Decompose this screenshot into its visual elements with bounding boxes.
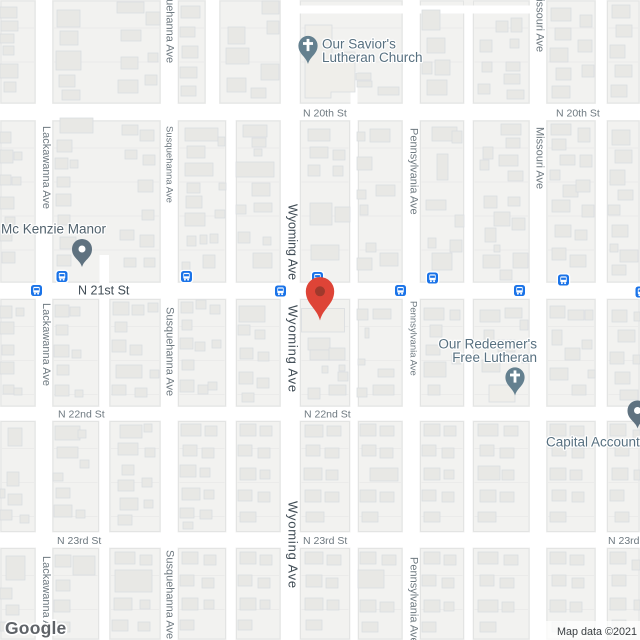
svg-text:Susquehanna Ave: Susquehanna Ave	[164, 0, 176, 63]
svg-text:N 23rd St: N 23rd St	[608, 535, 640, 547]
svg-text:Wyoming Ave: Wyoming Ave	[286, 204, 300, 280]
svg-text:Pennsylvania Ave: Pennsylvania Ave	[408, 557, 420, 640]
svg-text:Map data ©2021: Map data ©2021	[557, 626, 637, 638]
svg-text:Free Lutheran: Free Lutheran	[452, 350, 537, 365]
svg-text:N 22nd St: N 22nd St	[304, 409, 351, 421]
svg-text:Susquehanna Ave: Susquehanna Ave	[164, 126, 175, 203]
svg-text:N 20th St: N 20th St	[303, 108, 347, 120]
svg-text:Google: Google	[5, 618, 67, 638]
svg-text:N 22nd St: N 22nd St	[58, 409, 105, 421]
svg-text:Susquehanna Ave: Susquehanna Ave	[164, 550, 176, 639]
svg-text:Mc Kenzie Manor: Mc Kenzie Manor	[1, 222, 107, 237]
svg-text:N 23rd St: N 23rd St	[57, 535, 101, 547]
svg-text:Susquehanna Ave: Susquehanna Ave	[164, 307, 176, 396]
svg-text:Missouri Ave: Missouri Ave	[534, 0, 546, 52]
svg-text:Capital Accounting: Capital Accounting	[546, 435, 640, 450]
svg-text:Missouri Ave: Missouri Ave	[534, 127, 546, 189]
svg-text:N 21st St: N 21st St	[78, 284, 130, 298]
svg-text:N 23rd St: N 23rd St	[303, 535, 347, 547]
svg-text:Lutheran Church: Lutheran Church	[322, 50, 423, 65]
svg-text:Wyoming Ave: Wyoming Ave	[286, 305, 301, 393]
svg-text:Pennsylvania Ave: Pennsylvania Ave	[408, 301, 419, 376]
svg-text:Pennsylvania Ave: Pennsylvania Ave	[408, 128, 420, 215]
svg-text:Wyoming Ave: Wyoming Ave	[286, 501, 301, 589]
svg-text:Lackawanna Ave: Lackawanna Ave	[40, 126, 52, 209]
svg-text:Lackawanna Ave: Lackawanna Ave	[40, 303, 52, 386]
svg-text:N 20th St: N 20th St	[556, 108, 600, 120]
